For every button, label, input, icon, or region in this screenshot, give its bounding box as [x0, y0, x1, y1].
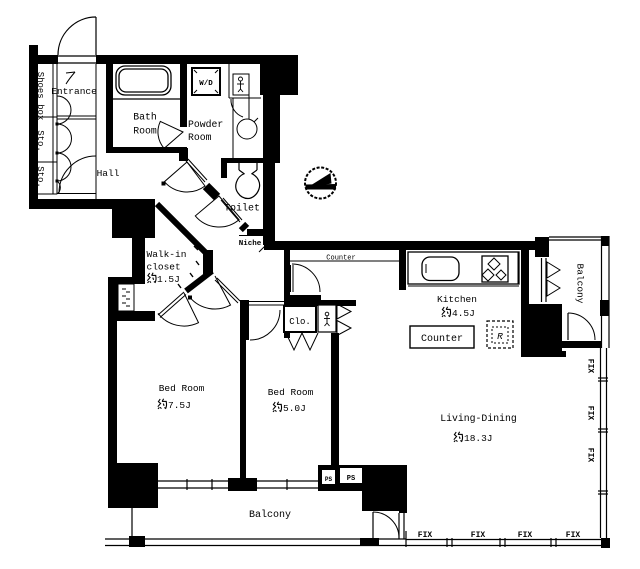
svg-text:R: R — [497, 331, 503, 342]
svg-text:W/D: W/D — [199, 80, 213, 88]
svg-text:Sto.: Sto. — [35, 130, 45, 152]
svg-text:Kitchen: Kitchen — [437, 294, 477, 305]
svg-text:18.3J: 18.3J — [464, 433, 493, 444]
svg-text:FIX: FIX — [471, 531, 486, 540]
svg-text:Bath: Bath — [133, 112, 157, 123]
svg-text:FIX: FIX — [418, 531, 433, 540]
svg-text:Bed Room: Bed Room — [159, 383, 205, 394]
svg-text:Bed Room: Bed Room — [268, 387, 314, 398]
svg-text:Counter: Counter — [421, 334, 463, 345]
svg-text:Counter: Counter — [326, 255, 355, 263]
svg-text:FIX: FIX — [566, 531, 581, 540]
svg-text:Sto.: Sto. — [35, 166, 45, 188]
svg-text:FIX: FIX — [586, 406, 595, 421]
svg-text:Living-Dining: Living-Dining — [440, 413, 517, 424]
svg-text:Toilet: Toilet — [224, 203, 260, 215]
svg-text:Room: Room — [133, 126, 157, 137]
svg-text:Hall: Hall — [97, 168, 120, 179]
svg-text:Powder: Powder — [188, 119, 223, 130]
svg-text:FIX: FIX — [586, 359, 595, 374]
svg-text:Shoes box: Shoes box — [35, 72, 45, 121]
svg-text:4.5J: 4.5J — [452, 308, 475, 319]
svg-text:Niche: Niche — [239, 240, 262, 248]
svg-text:closet: closet — [147, 262, 181, 273]
svg-text:FIX: FIX — [518, 531, 533, 540]
svg-text:Entrance: Entrance — [51, 86, 97, 97]
svg-text:1.5J: 1.5J — [157, 274, 180, 285]
svg-text:Balcony: Balcony — [575, 264, 586, 304]
svg-text:7.5J: 7.5J — [168, 400, 191, 411]
svg-text:Room: Room — [188, 132, 212, 143]
svg-text:5.0J: 5.0J — [283, 403, 306, 414]
svg-text:PS: PS — [347, 475, 355, 483]
svg-text:Balcony: Balcony — [249, 509, 291, 521]
svg-text:PS: PS — [325, 476, 333, 483]
svg-text:Clo.: Clo. — [289, 317, 311, 327]
svg-text:FIX: FIX — [586, 448, 595, 463]
svg-text:Walk-in: Walk-in — [147, 249, 187, 260]
